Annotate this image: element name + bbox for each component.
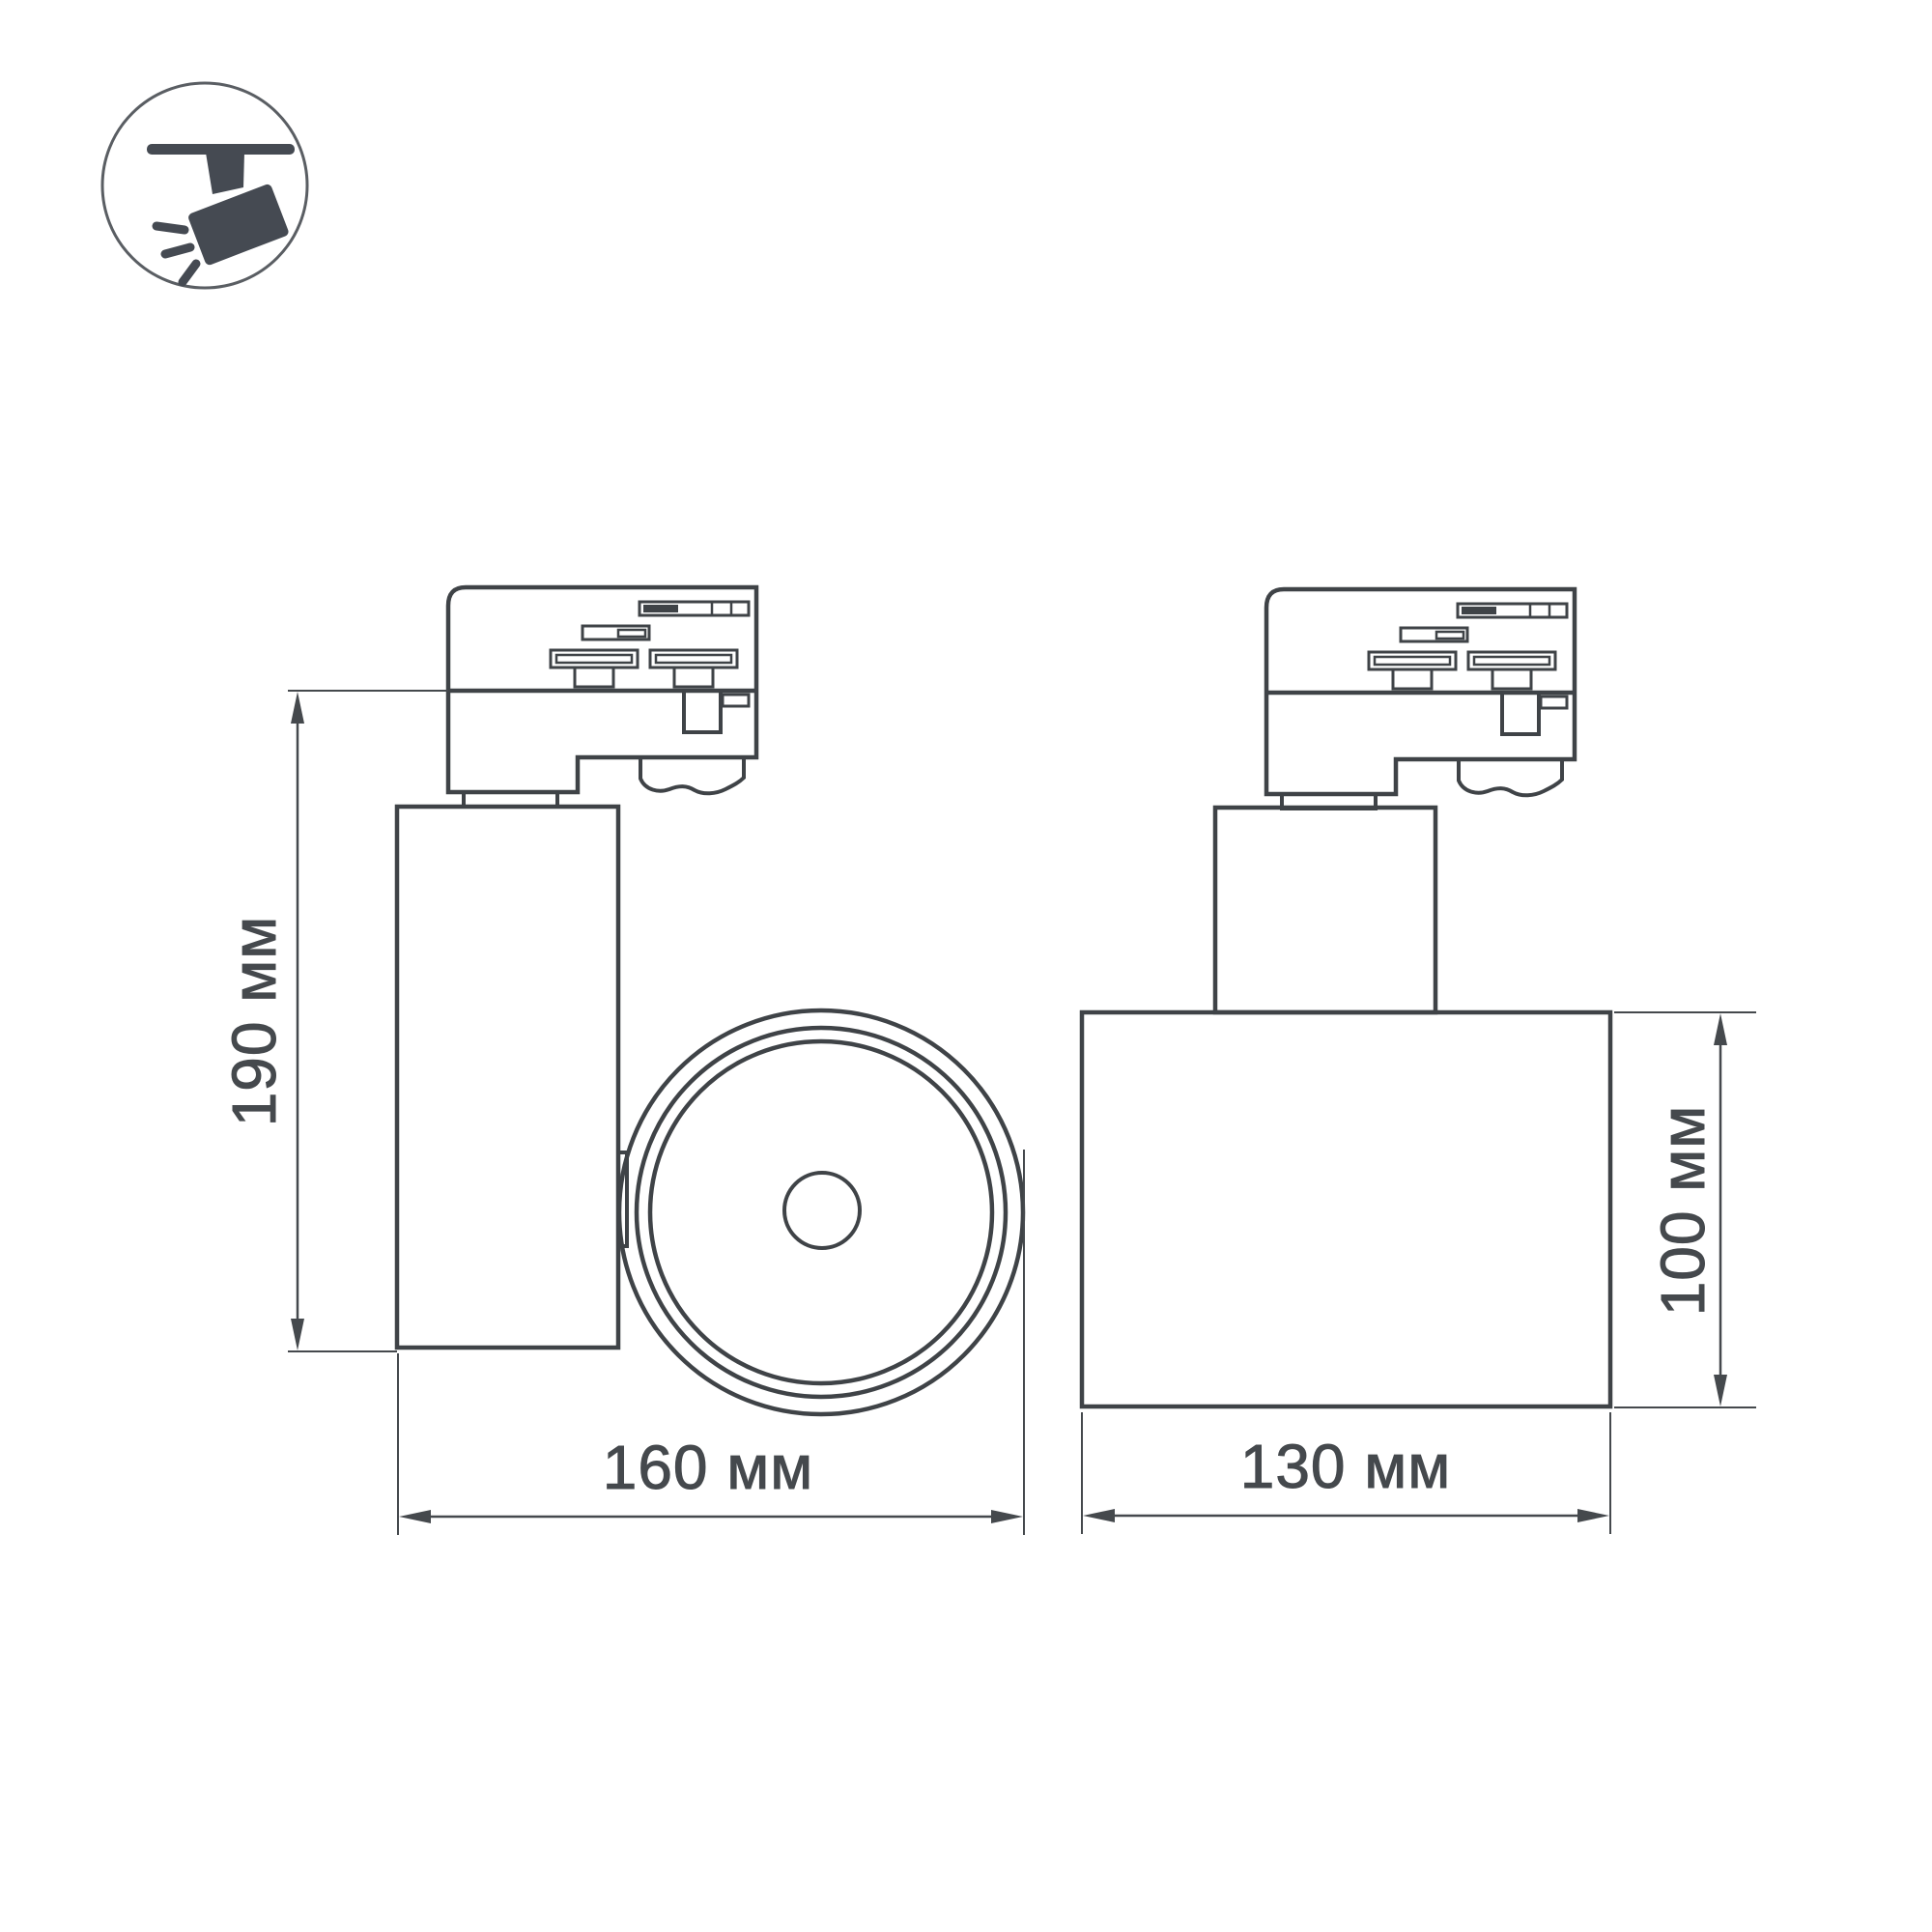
light-rays-icon [156, 226, 196, 282]
side-view [397, 807, 1023, 1414]
dimension-height-100: 100 мм [1614, 1012, 1756, 1407]
side-notch [723, 695, 749, 706]
lamp-body-front [1082, 1012, 1610, 1406]
wavy-connector [640, 759, 744, 793]
spot-head-icon [187, 183, 290, 266]
icon-stem [206, 153, 244, 194]
front-view [1082, 589, 1610, 1406]
dimensional-drawing: 190 мм 160 мм 130 мм 100 мм [0, 0, 1932, 1932]
lamp-neck-front [1215, 808, 1435, 1012]
lens-center [784, 1173, 860, 1248]
lamp-cylinder-side [397, 807, 618, 1348]
adapter-contacts [551, 602, 749, 687]
dimension-width-130: 130 мм [1082, 1412, 1610, 1534]
dimension-label-width-front: 130 мм [1240, 1432, 1452, 1501]
lens-face [619, 1010, 1023, 1414]
track-spotlight-icon [102, 83, 307, 288]
dimension-label-height-front: 100 мм [1648, 1105, 1718, 1317]
dimension-height-190: 190 мм [219, 691, 448, 1351]
technical-drawing-page: 190 мм 160 мм 130 мм 100 мм [0, 0, 1932, 1932]
track-adapter [448, 587, 756, 807]
drawing-outlines [397, 587, 1610, 1414]
dimension-label-height-side: 190 мм [219, 916, 289, 1127]
ground-latch [684, 691, 721, 732]
dimension-label-width-side: 160 мм [603, 1433, 814, 1502]
